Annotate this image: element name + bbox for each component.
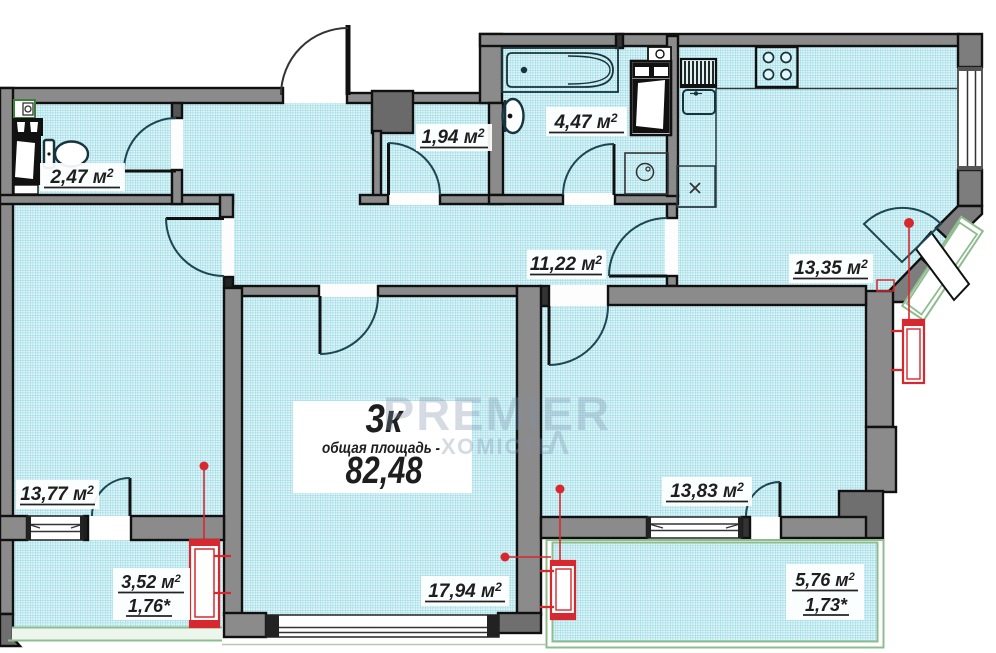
svg-text:1,73*: 1,73*: [805, 595, 848, 615]
svg-text:2,47 м2: 2,47 м2: [49, 166, 113, 188]
svg-text:Λ: Λ: [547, 424, 569, 461]
svg-text:ХОМІСТЬ: ХОМІСТЬ: [441, 434, 555, 459]
svg-text:4,47 м2: 4,47 м2: [553, 111, 617, 133]
svg-text:3,52 м2: 3,52 м2: [121, 572, 180, 592]
svg-text:17,94 м2: 17,94 м2: [428, 580, 502, 602]
svg-text:82,48: 82,48: [346, 450, 424, 492]
svg-text:PREMIER: PREMIER: [383, 387, 611, 440]
svg-text:5,76 м2: 5,76 м2: [795, 570, 854, 590]
svg-text:13,35 м2: 13,35 м2: [794, 257, 868, 279]
svg-text:1,76*: 1,76*: [128, 596, 171, 616]
svg-text:13,83 м2: 13,83 м2: [670, 480, 744, 502]
svg-text:13,77 м2: 13,77 м2: [20, 483, 94, 505]
svg-text:1,94 м2: 1,94 м2: [421, 126, 484, 148]
svg-text:11,22 м2: 11,22 м2: [530, 253, 602, 275]
